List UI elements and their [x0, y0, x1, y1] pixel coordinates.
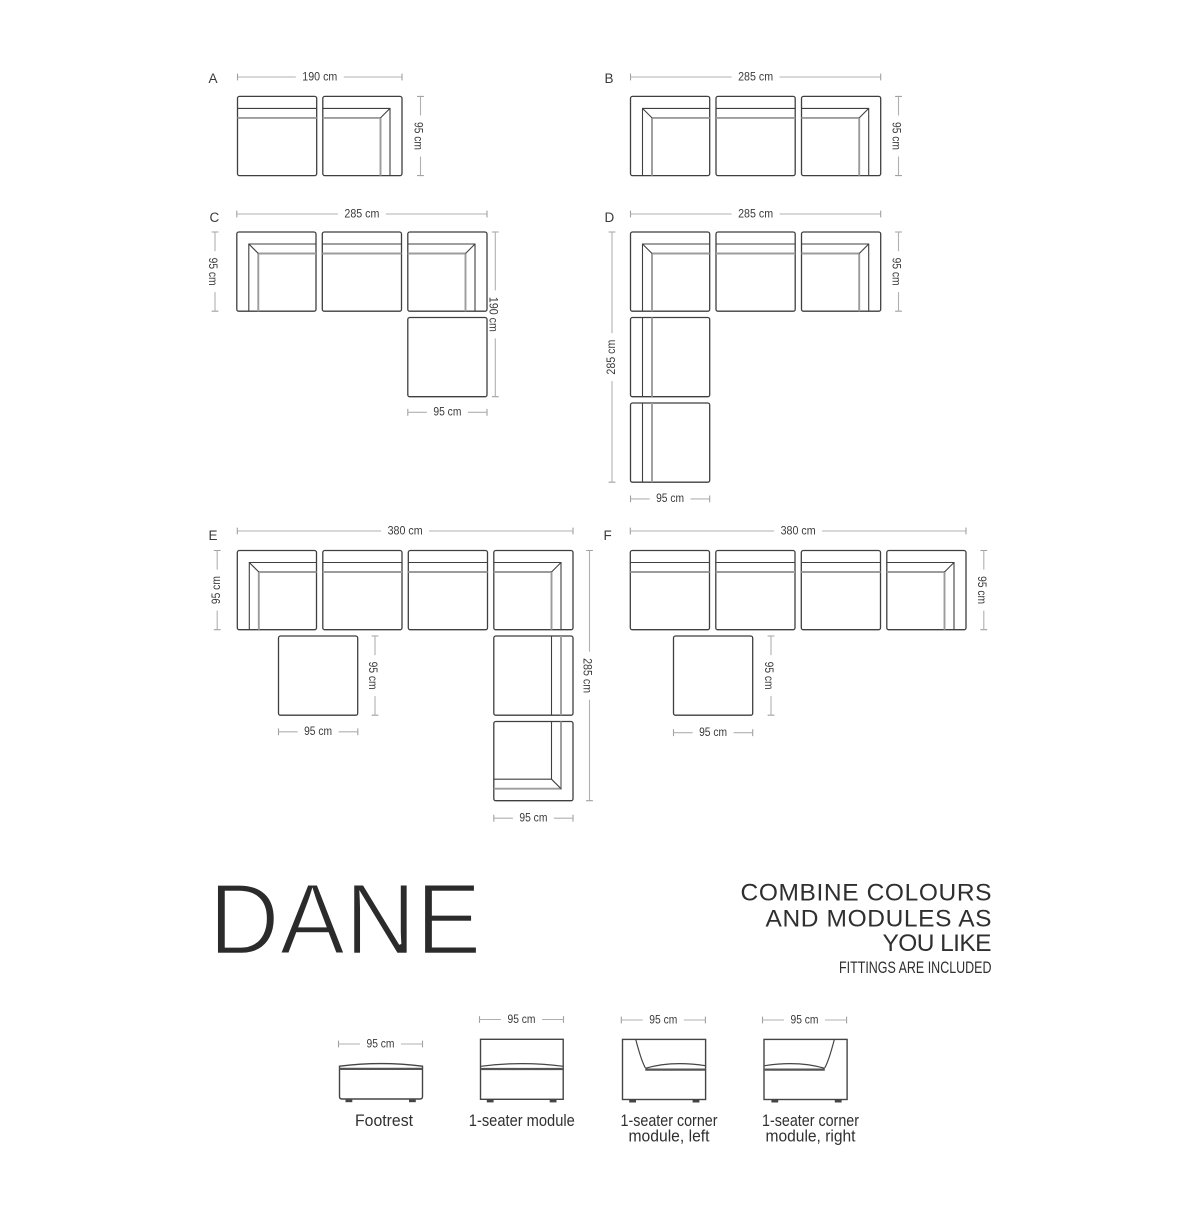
svg-text:C: C — [210, 210, 220, 225]
svg-text:YOU LIKE: YOU LIKE — [883, 930, 992, 957]
svg-text:Footrest: Footrest — [355, 1112, 413, 1130]
svg-text:95 cm: 95 cm — [762, 662, 774, 690]
svg-text:285 cm: 285 cm — [344, 208, 379, 220]
svg-text:95 cm: 95 cm — [649, 1014, 677, 1026]
svg-text:A: A — [209, 71, 218, 86]
svg-text:285 cm: 285 cm — [738, 71, 773, 83]
svg-text:190 cm: 190 cm — [302, 71, 337, 83]
svg-text:FITTINGS ARE INCLUDED: FITTINGS ARE INCLUDED — [839, 959, 992, 977]
svg-text:190 cm: 190 cm — [487, 297, 499, 332]
svg-text:95 cm: 95 cm — [206, 258, 218, 286]
svg-text:95 cm: 95 cm — [366, 662, 378, 690]
svg-text:95 cm: 95 cm — [975, 576, 987, 604]
svg-text:95 cm: 95 cm — [656, 493, 684, 505]
svg-text:F: F — [604, 528, 612, 543]
svg-text:95 cm: 95 cm — [791, 1014, 819, 1026]
svg-text:95 cm: 95 cm — [519, 813, 547, 825]
svg-text:E: E — [209, 528, 218, 543]
svg-text:module, left: module, left — [629, 1128, 710, 1146]
svg-text:380 cm: 380 cm — [388, 525, 423, 537]
svg-text:1-seater module: 1-seater module — [469, 1112, 575, 1130]
svg-text:95 cm: 95 cm — [890, 122, 902, 150]
svg-text:95 cm: 95 cm — [433, 407, 461, 419]
svg-text:95 cm: 95 cm — [890, 258, 902, 286]
svg-text:95 cm: 95 cm — [304, 726, 332, 738]
svg-text:285 cm: 285 cm — [581, 658, 593, 693]
svg-text:95 cm: 95 cm — [211, 576, 223, 604]
svg-text:380 cm: 380 cm — [781, 525, 816, 537]
svg-text:95 cm: 95 cm — [367, 1038, 395, 1050]
svg-text:COMBINE COLOURS: COMBINE COLOURS — [741, 879, 992, 906]
svg-text:95 cm: 95 cm — [412, 122, 424, 150]
svg-text:285 cm: 285 cm — [606, 340, 618, 375]
svg-text:module, right: module, right — [766, 1128, 856, 1146]
svg-text:B: B — [605, 71, 614, 86]
svg-text:285 cm: 285 cm — [738, 208, 773, 220]
svg-text:DANE: DANE — [209, 862, 482, 976]
svg-text:95 cm: 95 cm — [699, 727, 727, 739]
svg-text:D: D — [605, 210, 615, 225]
svg-text:95 cm: 95 cm — [508, 1014, 536, 1026]
svg-text:AND MODULES AS: AND MODULES AS — [766, 905, 992, 932]
